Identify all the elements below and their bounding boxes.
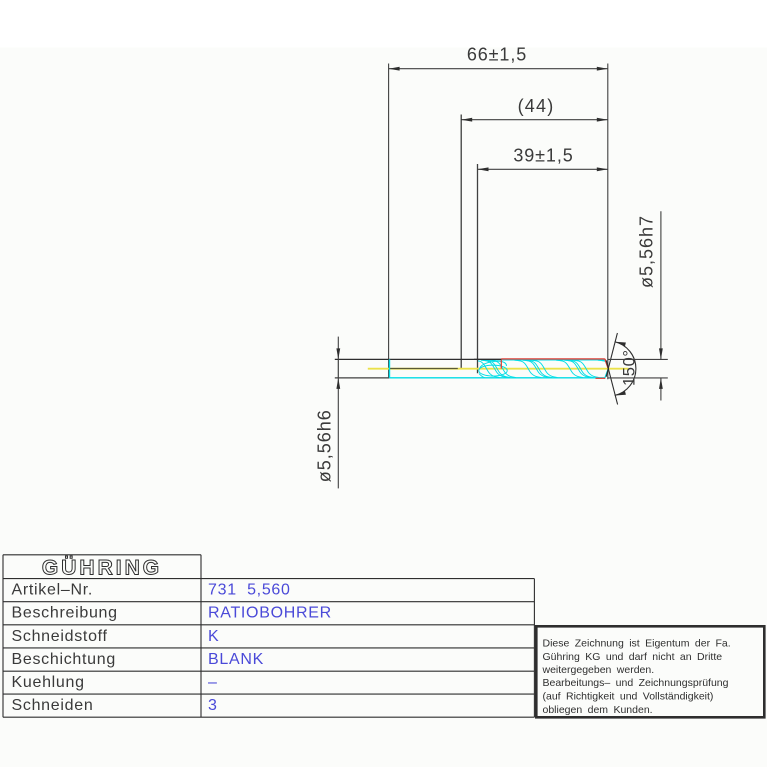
svg-text:obliegen dem Kunden.: obliegen dem Kunden. bbox=[543, 704, 653, 716]
svg-text:Gühring KG und darf nicht an D: Gühring KG und darf nicht an Dritte bbox=[543, 651, 723, 663]
svg-text:ø5,56h7: ø5,56h7 bbox=[637, 215, 657, 288]
svg-text:BLANK: BLANK bbox=[208, 651, 264, 668]
svg-text:3: 3 bbox=[208, 697, 218, 714]
svg-text:–: – bbox=[208, 674, 218, 691]
svg-text:731 5,560: 731 5,560 bbox=[208, 582, 291, 599]
svg-text:ø5,56h6: ø5,56h6 bbox=[315, 409, 335, 482]
svg-text:Bearbeitungs– und Zeichnungspr: Bearbeitungs– und Zeichnungsprüfung bbox=[543, 677, 729, 689]
svg-text:Beschreibung: Beschreibung bbox=[12, 605, 118, 622]
svg-text:Artikel–Nr.: Artikel–Nr. bbox=[12, 582, 94, 599]
svg-text:150°: 150° bbox=[621, 349, 639, 386]
svg-text:Schneidstoff: Schneidstoff bbox=[12, 628, 108, 645]
svg-text:Schneiden: Schneiden bbox=[12, 697, 94, 714]
svg-text:K: K bbox=[208, 628, 219, 645]
svg-text:Beschichtung: Beschichtung bbox=[12, 651, 116, 668]
svg-text:RATIOBOHRER: RATIOBOHRER bbox=[208, 605, 332, 622]
svg-text:(44): (44) bbox=[518, 96, 555, 116]
svg-text:GÜHRING: GÜHRING bbox=[42, 556, 162, 579]
svg-text:39±1,5: 39±1,5 bbox=[513, 146, 573, 166]
svg-text:66±1,5: 66±1,5 bbox=[467, 45, 527, 65]
svg-text:Kuehlung: Kuehlung bbox=[12, 674, 85, 691]
svg-text:(auf Richtigkeit und Vollständ: (auf Richtigkeit und Vollständigkeit) bbox=[543, 691, 714, 703]
svg-text:weitergegeben werden.: weitergegeben werden. bbox=[542, 664, 655, 676]
svg-text:Diese Zeichnung ist Eigentum d: Diese Zeichnung ist Eigentum der Fa. bbox=[543, 638, 731, 650]
